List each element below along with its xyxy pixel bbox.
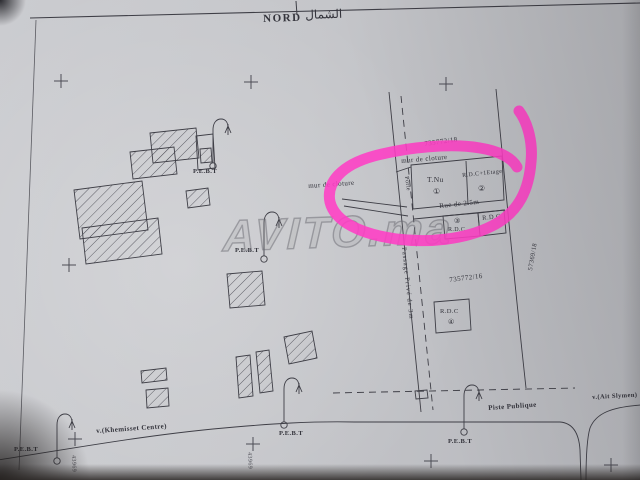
site-plan-photo: NORD الشمال P.E.B.T P.E.B.T P.E.B.T P.E.… (0, 0, 640, 480)
pink-marker-circle (0, 0, 640, 480)
